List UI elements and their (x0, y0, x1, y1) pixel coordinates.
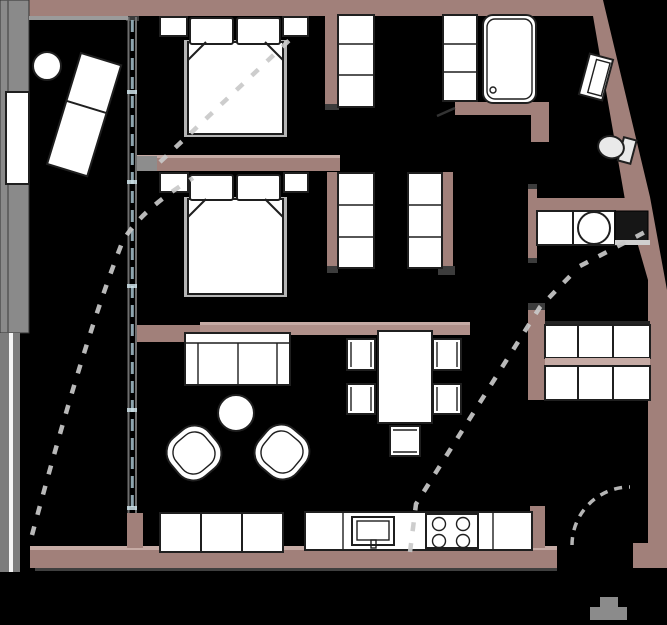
wall-corridor-accent (200, 322, 470, 325)
kitchen (160, 512, 532, 552)
cabinet-divider (545, 358, 650, 366)
nightstand-left (160, 17, 187, 36)
pillow-left (190, 175, 233, 200)
shoe-cabinet-row-2 (545, 366, 650, 400)
bathtub (483, 15, 536, 103)
nightstand-right (283, 17, 308, 36)
dining-table (378, 331, 432, 423)
kitchen-counter (305, 512, 532, 550)
bedroom-2 (160, 173, 308, 297)
armchair-right (247, 417, 317, 487)
nightstand-right (284, 173, 308, 192)
doorstep (590, 607, 627, 620)
wall-bathroom-jamb (531, 102, 549, 142)
armchair-left (159, 418, 229, 488)
dark-counter (615, 211, 648, 242)
shoe-cabinet-row-1 (545, 325, 650, 358)
overlay-lines (32, 33, 647, 552)
wall-closet-right (442, 172, 453, 272)
double-bed-mattress (188, 199, 283, 294)
dining-area (347, 331, 461, 456)
bottom-wall-shadow (35, 568, 557, 571)
coffee-table (218, 395, 254, 431)
entry (545, 321, 650, 620)
door-leaf-tick (437, 108, 455, 116)
wall-hall (528, 303, 545, 400)
storage-nook (338, 15, 477, 107)
utility-alcove (537, 211, 650, 245)
pillow-left (190, 18, 233, 44)
wall-closet-top (325, 16, 339, 110)
walk-in-closet (338, 173, 442, 268)
bedroom-1 (160, 17, 308, 137)
top-wall (29, 0, 593, 16)
round-side-table (33, 52, 61, 80)
railing-glass-line (9, 333, 13, 572)
entrance-door-swing (572, 487, 630, 545)
wall-cap (528, 184, 537, 189)
wall-alcove-top (528, 198, 650, 211)
slope-dash-line-balcony (32, 178, 193, 535)
washing-machine-drum (578, 212, 610, 244)
balcony-top-edge (29, 16, 128, 20)
wall-cap (528, 258, 537, 263)
doormat (600, 597, 618, 608)
wall-below-glazing (127, 513, 143, 548)
wardrobe-b (443, 15, 477, 101)
floor-plan-canvas (0, 0, 667, 625)
balcony-glazing (126, 16, 143, 548)
wardrobe-left (338, 173, 374, 268)
wall-cap (325, 104, 339, 110)
sideboard (160, 513, 283, 552)
floor-plan (0, 0, 667, 625)
pillow-right (237, 18, 280, 44)
railing-window (6, 92, 29, 184)
living-area (159, 333, 317, 488)
partition-end-cap (137, 156, 157, 171)
wardrobe-right (408, 173, 442, 268)
wall-cap (327, 266, 338, 273)
wall-alcove-left (528, 188, 537, 260)
wardrobe-a (338, 15, 374, 107)
pillow-right (237, 175, 280, 200)
balcony (0, 0, 128, 572)
wall-closet-left (327, 172, 338, 272)
